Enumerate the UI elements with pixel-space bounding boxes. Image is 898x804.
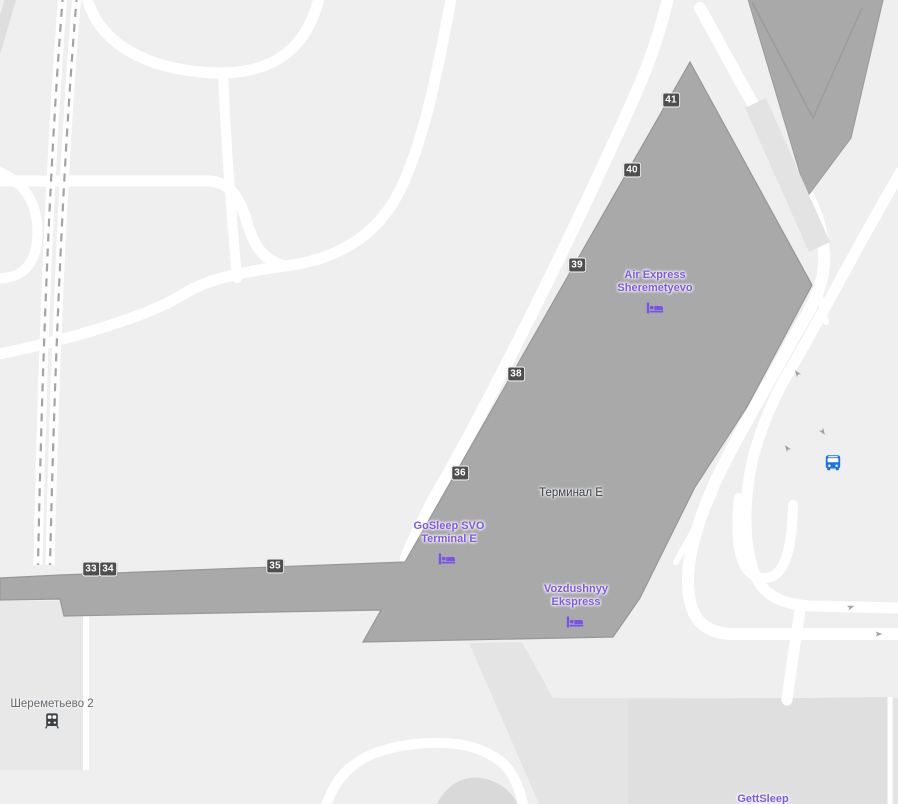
poi-label-line: GettSleep <box>737 793 788 804</box>
gate-marker-40[interactable]: 40 <box>623 163 641 178</box>
gate-marker-33[interactable]: 33 <box>82 562 100 577</box>
poi-label-line: Terminal E <box>414 533 485 546</box>
bed-icon[interactable] <box>567 617 584 628</box>
bed-icon[interactable] <box>439 554 456 565</box>
poi-label-line: Air Express <box>617 269 692 282</box>
terminal-e-label: Терминал Е <box>539 487 603 499</box>
gate-marker-35[interactable]: 35 <box>266 559 284 574</box>
gate-marker-41[interactable]: 41 <box>662 93 680 108</box>
gate-marker-38[interactable]: 38 <box>507 367 525 382</box>
map-canvas[interactable]: 33 34 35 36 38 39 40 41 Air Express Sher… <box>0 0 898 804</box>
bottom-right-building <box>628 697 888 804</box>
train-icon[interactable] <box>45 713 59 729</box>
poi-label-line: Sheremetyevo <box>617 282 692 295</box>
poi-label-line: GoSleep SVO <box>414 520 485 533</box>
poi-air-express-sheremetyevo[interactable]: Air Express Sheremetyevo <box>617 269 692 295</box>
sheremetyevo-2-label[interactable]: Шереметьево 2 <box>10 698 93 710</box>
poi-label-line: Ekspress <box>544 596 608 609</box>
gate-marker-39[interactable]: 39 <box>568 258 586 273</box>
poi-vozdushnyy-ekspress[interactable]: Vozdushnyy Ekspress <box>544 583 608 609</box>
bed-icon[interactable] <box>647 303 664 314</box>
poi-label-line: Vozdushnyy <box>544 583 608 596</box>
gate-marker-34[interactable]: 34 <box>99 562 117 577</box>
station-building-block <box>0 601 83 770</box>
bus-icon[interactable] <box>825 455 841 472</box>
poi-gettsleep[interactable]: GettSleep <box>737 793 788 804</box>
poi-gosleep-svo[interactable]: GoSleep SVO Terminal E <box>414 520 485 546</box>
gate-marker-36[interactable]: 36 <box>451 466 469 481</box>
map-base-layer <box>0 0 898 804</box>
